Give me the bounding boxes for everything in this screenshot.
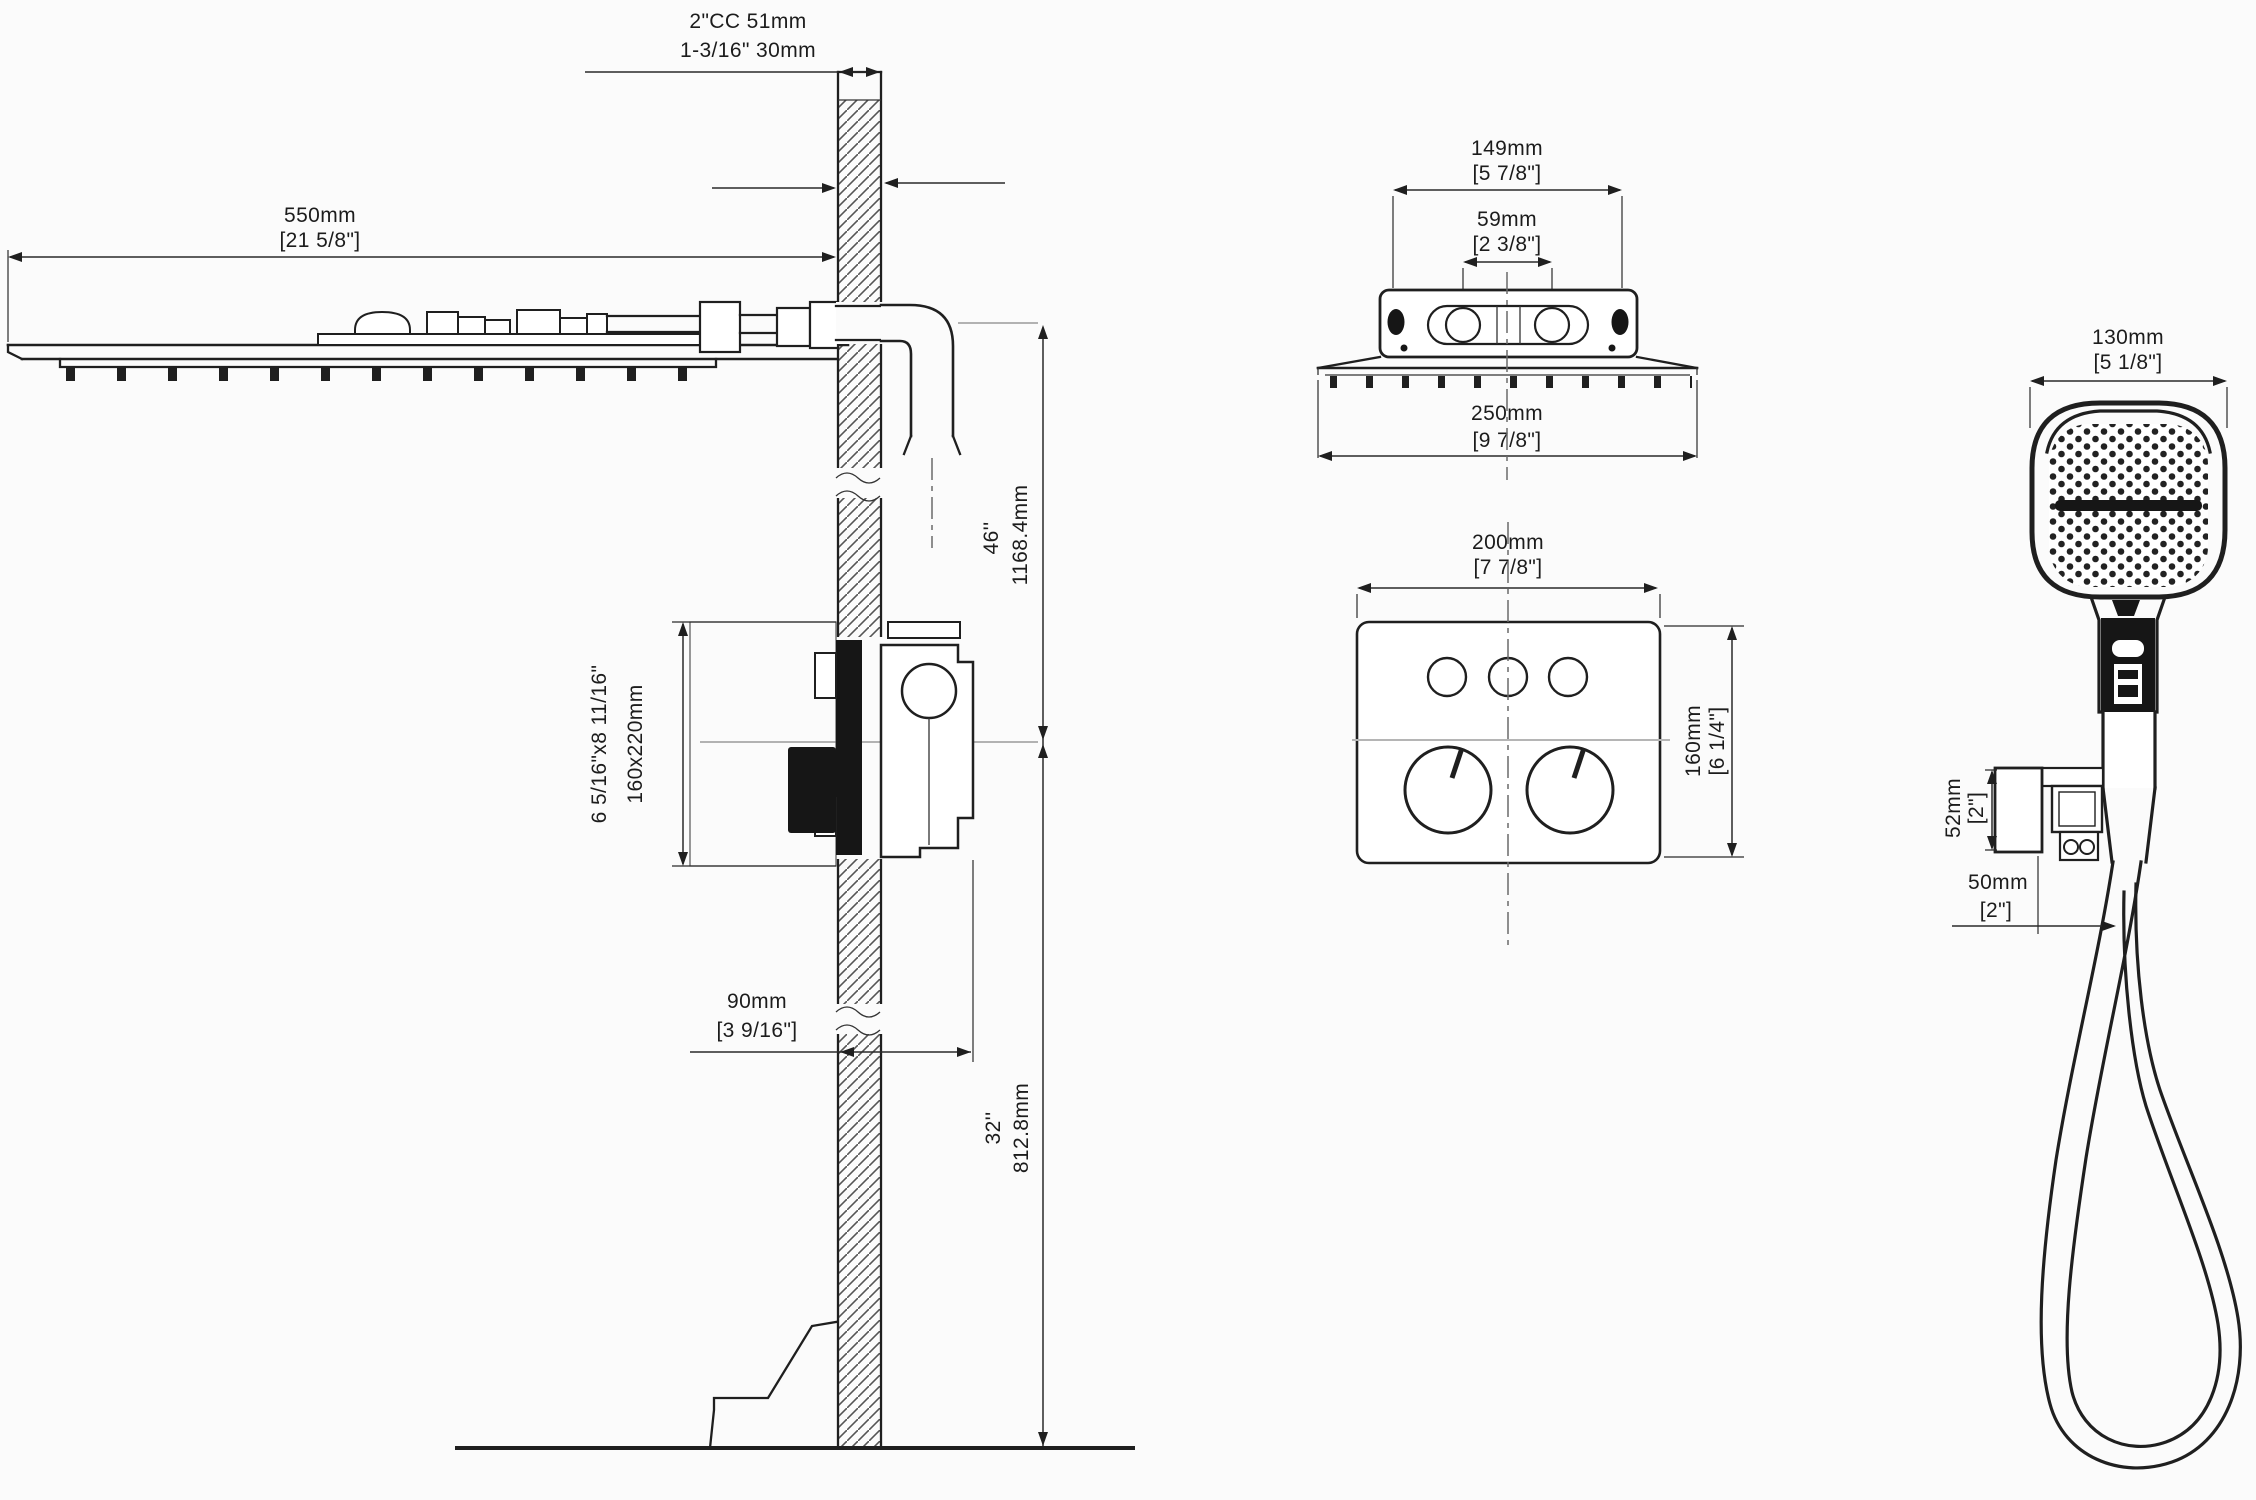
holder-depth-dimension: 50mm [2"]	[1952, 856, 2116, 934]
holder-arm	[2042, 768, 2103, 786]
arrowhead	[1357, 583, 1371, 593]
pipe-fitting	[700, 302, 740, 352]
floor-and-step	[455, 1322, 1135, 1448]
dimension-label: 50mm	[1968, 871, 2028, 894]
valve-assembly-side	[690, 622, 1038, 866]
arrowhead	[1727, 626, 1737, 640]
dimension-label: 90mm	[727, 990, 787, 1013]
valve-depth-dimension: 90mm [3 9/16"]	[690, 860, 973, 1062]
mount-block	[560, 318, 587, 334]
bracket-screw	[1612, 309, 1629, 335]
trim-button-profile	[815, 653, 836, 698]
dimension-label: 812.8mm	[1010, 1083, 1033, 1173]
dimension-label: 52mm	[1942, 778, 1965, 838]
arrowhead	[1538, 257, 1552, 267]
extension-line	[2030, 387, 2227, 428]
hose-outline	[2067, 862, 2220, 1446]
elbow-fill	[881, 305, 953, 450]
arrowhead	[8, 252, 22, 262]
mount-block	[517, 310, 560, 334]
side-view: 2"CC 51mm 1-3/16" 30mm 550mm [21 5/8"]	[8, 10, 1135, 1448]
dimension-label: [2 3/8"]	[1472, 233, 1541, 256]
dimension-label: [2"]	[1965, 792, 1988, 824]
dimension-label: 2"CC 51mm	[689, 10, 806, 33]
holder-height-dimension: 52mm [2"]	[1942, 770, 1997, 850]
dimension-label: [3 9/16"]	[716, 1019, 797, 1042]
arrowhead	[678, 852, 688, 866]
slide-button-grip	[2118, 685, 2138, 697]
arrowhead	[1608, 185, 1622, 195]
arrowhead	[1463, 257, 1477, 267]
dimension-label: 46''	[980, 522, 1003, 555]
arrowhead	[678, 622, 688, 636]
wall-thickness-dimension: 2"CC 51mm 1-3/16" 30mm	[585, 10, 1005, 193]
arrowhead	[2213, 376, 2227, 386]
mount-rail	[318, 334, 700, 345]
dimension-label: 32''	[982, 1112, 1005, 1145]
neck-collar	[2112, 600, 2140, 616]
holder-wall-plate	[1995, 768, 2042, 852]
pipe-nut	[810, 302, 838, 348]
arrowhead	[1038, 1432, 1048, 1446]
inlet-port	[1535, 308, 1569, 342]
drawing-canvas: 2"CC 51mm 1-3/16" 30mm 550mm [21 5/8"]	[0, 0, 2256, 1500]
dimension-label: 149mm	[1471, 137, 1543, 160]
arrowhead	[2030, 376, 2044, 386]
screw-dot	[1609, 345, 1616, 352]
arrowhead	[866, 67, 880, 77]
trim-view: 200mm [7 7/8"] 160mm [6 1/4"]	[1352, 522, 1744, 945]
hose-outline	[2041, 862, 2240, 1468]
valve-top-fitting	[888, 622, 960, 638]
slide-button-grip	[2118, 670, 2138, 679]
handle-taper	[2103, 788, 2155, 862]
dimension-label: [6 1/4"]	[1706, 706, 1729, 775]
back-view: 149mm [5 7/8"] 59mm [2 3/8"] 250mm [9 7/…	[1318, 137, 1697, 480]
arrowhead	[822, 183, 836, 193]
arrowhead	[2102, 921, 2116, 931]
mount-block	[485, 320, 510, 334]
tub-step-outline	[710, 1322, 836, 1448]
arrowhead	[1038, 744, 1048, 758]
dimension-label: 160x220mm	[624, 684, 647, 803]
wall-holder	[1995, 768, 2103, 860]
wall-pipe-clearance	[836, 302, 883, 344]
arrowhead	[1727, 843, 1737, 857]
handle-body	[2104, 712, 2154, 788]
diverter-button	[1549, 658, 1587, 696]
control-knob	[1405, 747, 1491, 833]
dimension-label: [5 1/8"]	[2093, 351, 2162, 374]
supply-pipe	[607, 316, 700, 332]
mount-block	[587, 314, 607, 334]
break-mask	[834, 468, 883, 498]
dimension-label: [21 5/8"]	[279, 229, 360, 252]
hand-shower-view: 130mm [5 1/8"]	[1942, 326, 2240, 1468]
dimension-label: 160mm	[1682, 705, 1705, 777]
height-dimensions: 46'' 1168.4mm 32'' 812.8mm	[958, 323, 1048, 1446]
arrowhead	[884, 178, 898, 188]
diverter-button	[1428, 658, 1466, 696]
arrowhead	[1644, 583, 1658, 593]
screw-dot	[1401, 345, 1408, 352]
arrowhead	[1393, 185, 1407, 195]
valve-port	[902, 664, 956, 718]
valve-knob-profile	[788, 747, 836, 833]
arrowhead	[822, 252, 836, 262]
supply-pipe	[740, 315, 777, 333]
arrowhead	[1318, 451, 1332, 461]
pipe-fitting	[777, 308, 810, 346]
mount-block	[458, 317, 485, 334]
trim-plate-edge	[836, 640, 862, 855]
mode-button	[2112, 640, 2144, 657]
dimension-label: [5 7/8"]	[1472, 162, 1541, 185]
arrowhead	[957, 1047, 971, 1057]
mount-block	[427, 312, 458, 334]
head-plate-front-edge	[8, 345, 22, 359]
dimension-label: [2"]	[1980, 899, 2012, 922]
dimension-label: 6 5/16"x8 11/16"	[588, 665, 611, 824]
arrowhead	[839, 67, 853, 77]
arrowhead	[1683, 451, 1697, 461]
rain-shower-head-side	[8, 302, 848, 374]
mount-dome	[355, 312, 410, 334]
clamp-hole	[2080, 840, 2094, 854]
clamp-hole	[2064, 840, 2078, 854]
bracket-screw	[1388, 309, 1405, 335]
inlet-port	[1446, 308, 1480, 342]
dimension-label: 59mm	[1477, 208, 1537, 231]
technical-drawing: 2"CC 51mm 1-3/16" 30mm 550mm [21 5/8"]	[0, 0, 2256, 1500]
shower-hose	[2041, 862, 2240, 1468]
dimension-label: 550mm	[284, 204, 356, 227]
spray-face-bar	[2055, 500, 2202, 511]
arrowhead	[1038, 325, 1048, 339]
dimension-label: 1168.4mm	[1009, 485, 1032, 586]
dimension-label: 130mm	[2092, 326, 2164, 349]
control-knob	[1527, 747, 1613, 833]
arrowhead	[1038, 726, 1048, 740]
dimension-label: 1-3/16" 30mm	[680, 39, 816, 62]
